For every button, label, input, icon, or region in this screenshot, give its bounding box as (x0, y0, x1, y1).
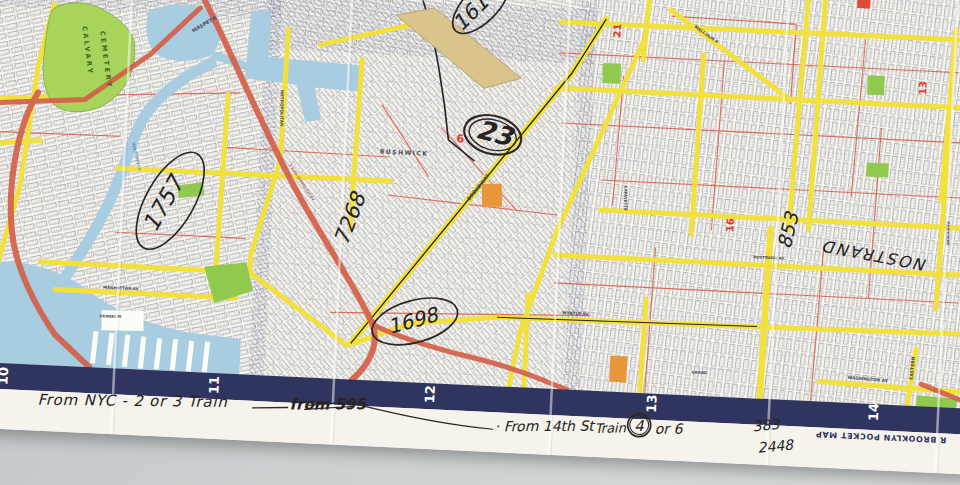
district-number-13: 13 (917, 81, 929, 95)
park (867, 75, 885, 95)
note-train-number: 4 (634, 417, 644, 435)
note-from-nyc: From NYC - 2 or 3 Train (37, 391, 227, 411)
grid-number-12: 12 (422, 385, 438, 404)
note-from-14th: · From 14th St (495, 418, 597, 435)
institution-block (482, 184, 503, 207)
grid-number-14: 14 (866, 403, 882, 422)
note-train-word: Train (594, 420, 626, 436)
note-383: 383 (752, 416, 781, 435)
label-metropolitan: METROPOLITAN (279, 90, 284, 127)
label-lafayette: LAFAYETTE (623, 186, 628, 211)
grid-number-13: 13 (644, 394, 660, 413)
map-sheet: CALVARY CEMETERY MASPETH NEWTOWN CR BUSH… (0, 0, 960, 475)
grid-number-10: 10 (0, 367, 11, 386)
grid-number-11: 11 (206, 376, 222, 395)
label-grand: GRAND (692, 369, 708, 375)
note-2448: 2448 (757, 436, 795, 455)
district-number-21: 21 (611, 23, 623, 37)
district-number-16: 16 (724, 218, 736, 232)
map-artwork: CALVARY CEMETERY MASPETH NEWTOWN CR BUSH… (0, 0, 960, 475)
park (602, 63, 621, 84)
note-or-6: or 6 (655, 421, 684, 437)
park (866, 163, 889, 178)
red-marker-block (857, 0, 870, 8)
institution-block (609, 356, 627, 383)
photo-of-folded-map: CALVARY CEMETERY MASPETH NEWTOWN CR BUSH… (0, 0, 960, 485)
